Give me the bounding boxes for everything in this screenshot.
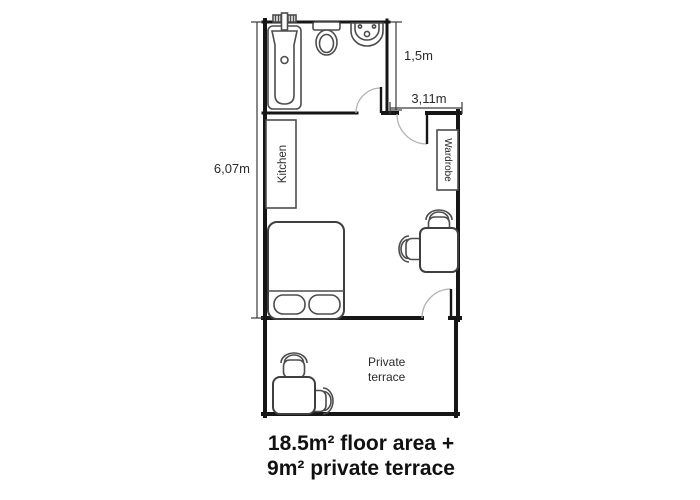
toilet	[313, 22, 340, 55]
dimension-label-3-11m: 3,11m	[411, 91, 446, 106]
wardrobe-label: Wardrobe	[442, 138, 453, 182]
sink	[351, 23, 383, 46]
terrace-table	[273, 377, 315, 414]
dimension-apartment-length: 6,07m	[214, 22, 263, 318]
pillow-left	[274, 295, 305, 314]
terrace-door	[422, 289, 451, 318]
dimension-label-6-07m: 6,07m	[214, 161, 250, 176]
area-caption: 18.5m² floor area + 9m² private terrace	[267, 431, 455, 481]
pillow-right	[309, 295, 340, 314]
desk	[420, 228, 458, 272]
floor-plan-page: Kitchen Wardrobe Private terrace 6,07m	[0, 0, 700, 500]
area-caption-line1: 18.5m² floor area +	[267, 431, 455, 456]
bathroom-door	[356, 87, 381, 113]
dimension-label-1-5m: 1,5m	[404, 48, 433, 63]
terrace-label: Private terrace	[368, 355, 406, 384]
bathtub	[268, 13, 301, 109]
entrance-door	[397, 114, 427, 144]
terrace-label-line2: terrace	[368, 370, 406, 384]
terrace-chair-top	[281, 353, 307, 378]
kitchen-label: Kitchen	[277, 145, 289, 183]
wardrobe: Wardrobe	[437, 130, 458, 190]
double-bed	[268, 222, 344, 319]
area-caption-line2: 9m² private terrace	[267, 456, 455, 481]
kitchen-counter: Kitchen	[266, 120, 296, 208]
floor-plan: Kitchen Wardrobe Private terrace 6,07m	[0, 0, 700, 500]
terrace-label-line1: Private	[368, 355, 406, 369]
